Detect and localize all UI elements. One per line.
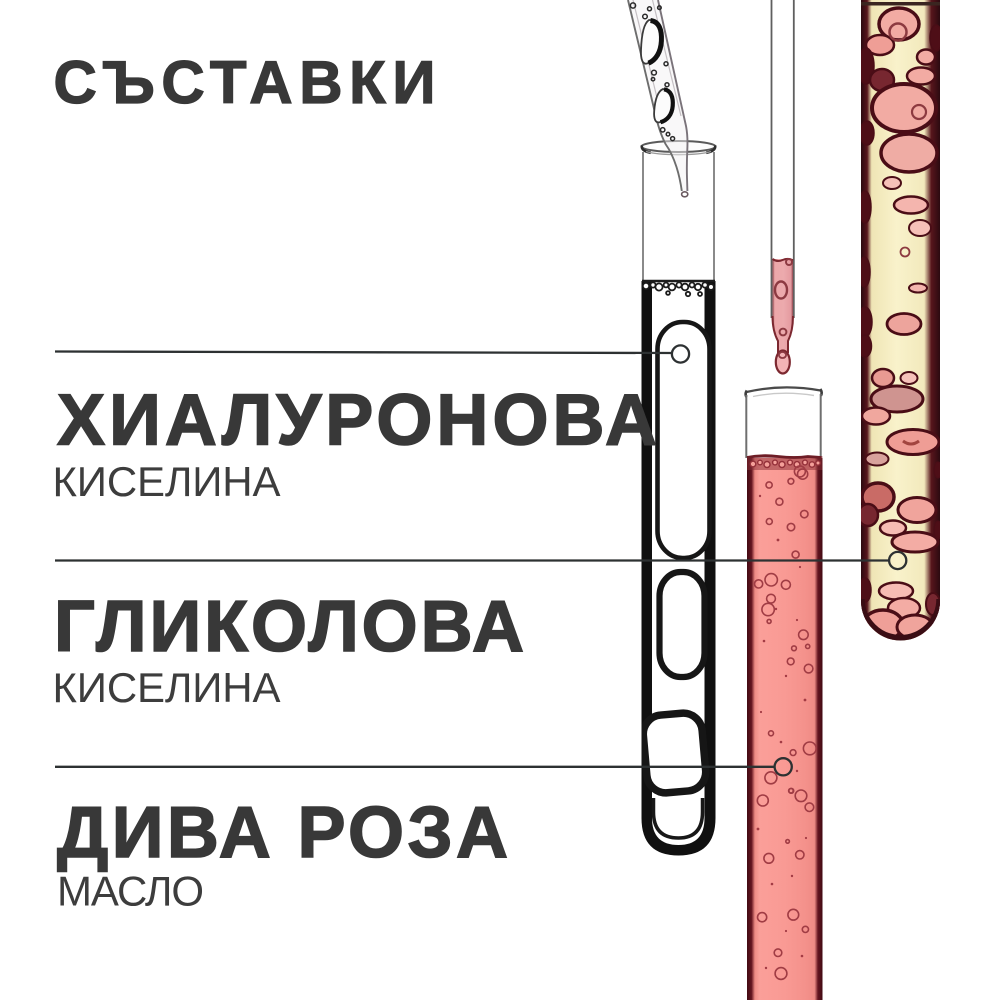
svg-text:МАСЛО: МАСЛО	[57, 868, 204, 915]
svg-text:ГЛИКОЛОВА: ГЛИКОЛОВА	[54, 587, 524, 667]
svg-text:КИСЕЛИНА: КИСЕЛИНА	[53, 664, 281, 711]
svg-text:ХИАЛУРОНОВА: ХИАЛУРОНОВА	[57, 381, 657, 461]
svg-text:КИСЕЛИНА: КИСЕЛИНА	[53, 458, 281, 505]
svg-text:ДИВА РОЗА: ДИВА РОЗА	[57, 793, 508, 873]
